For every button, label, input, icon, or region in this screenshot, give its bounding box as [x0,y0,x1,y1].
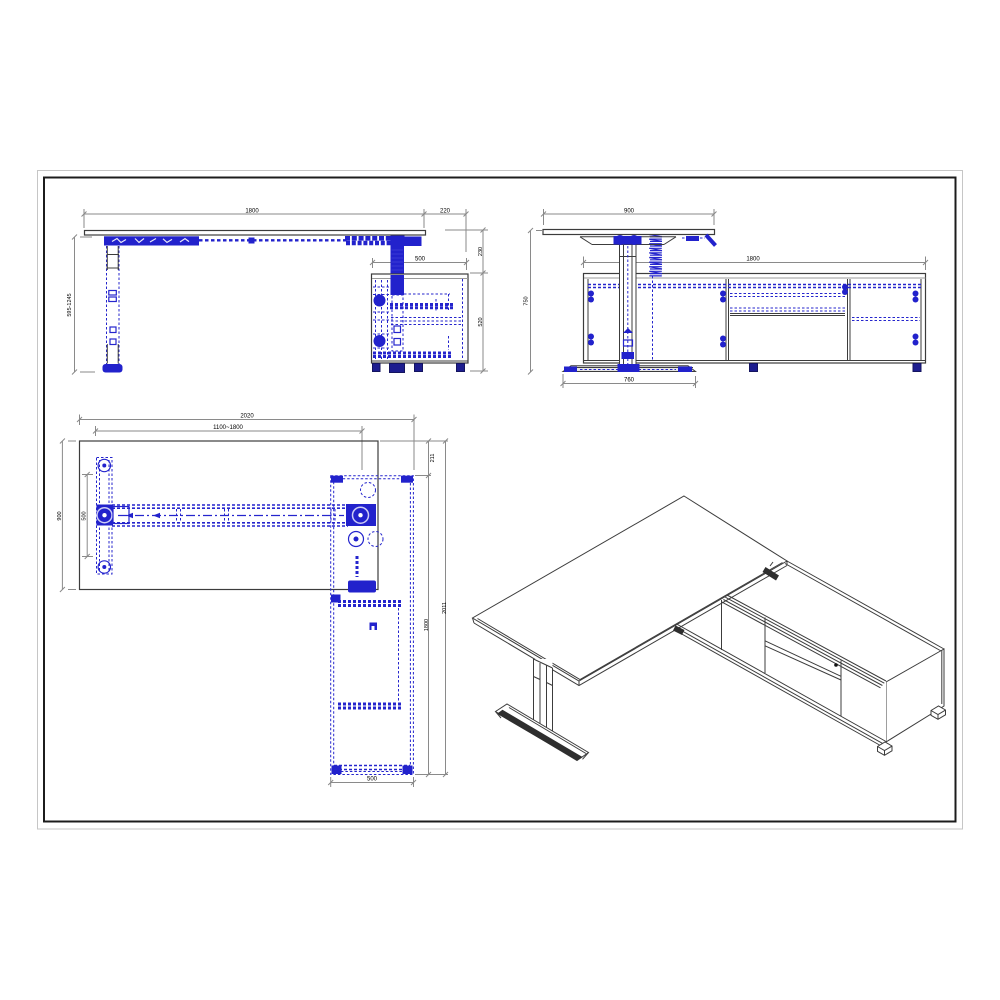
svg-text:500: 500 [82,511,88,520]
svg-text:520: 520 [478,317,484,326]
svg-text:1800: 1800 [424,619,430,631]
svg-text:230: 230 [478,247,484,256]
svg-text:900: 900 [624,209,635,215]
svg-text:1800: 1800 [746,257,760,263]
svg-text:2020: 2020 [240,414,254,420]
svg-text:1800: 1800 [245,209,259,215]
svg-text:900: 900 [57,511,63,520]
svg-text:760: 760 [624,378,635,384]
svg-text:220: 220 [440,209,451,215]
svg-text:211: 211 [430,454,436,463]
svg-text:595-1245: 595-1245 [67,293,73,316]
svg-text:500: 500 [415,257,426,263]
svg-text:500: 500 [367,777,378,783]
svg-text:2011: 2011 [442,602,448,614]
svg-text:750: 750 [524,296,530,305]
svg-text:1100~1800: 1100~1800 [213,425,243,431]
